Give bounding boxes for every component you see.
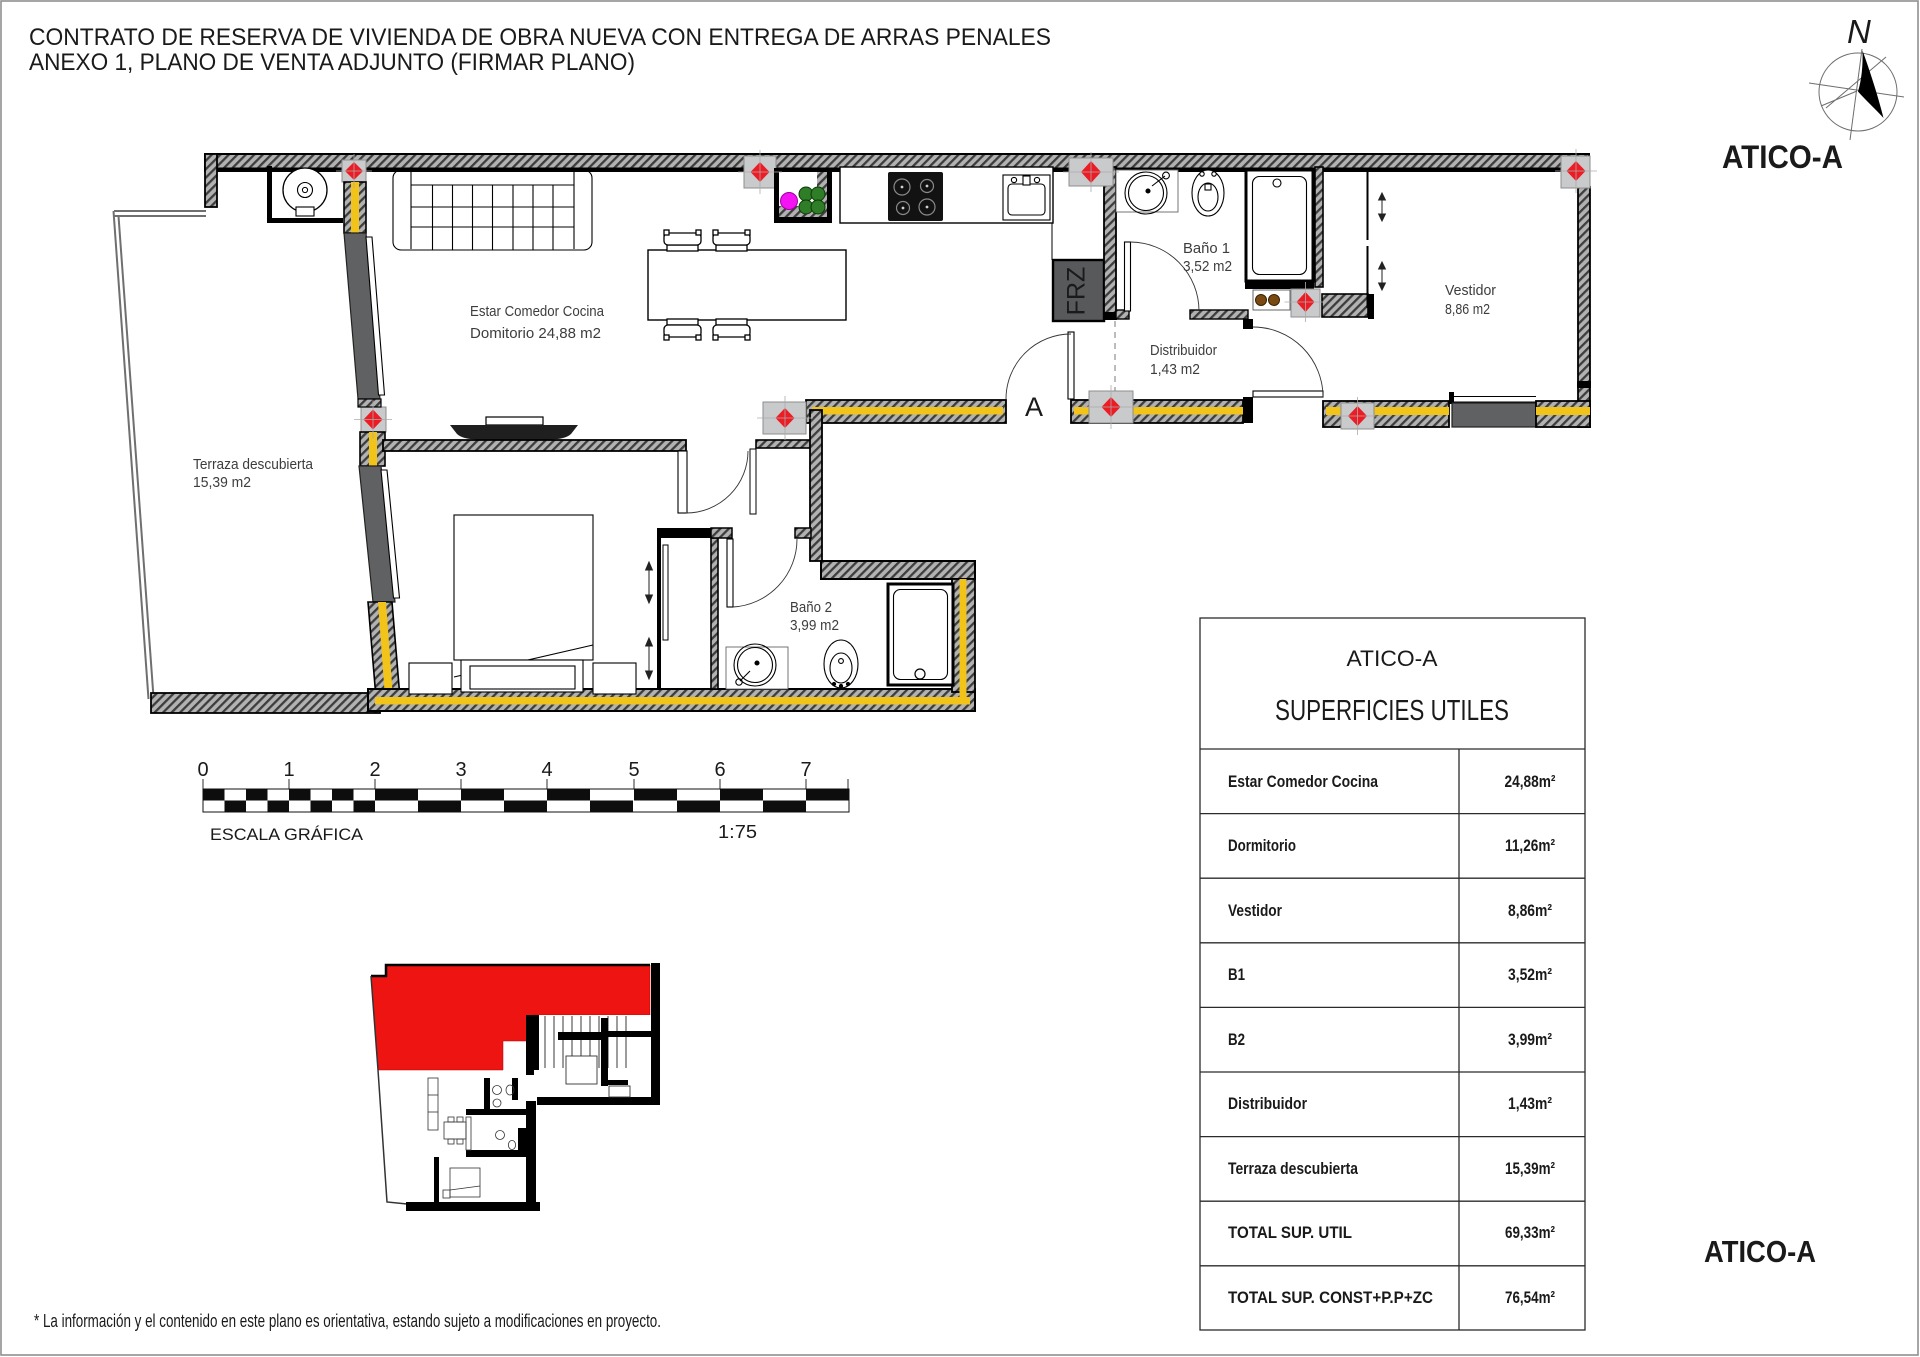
svg-text:TOTAL SUP. CONST+P.P+ZC: TOTAL SUP. CONST+P.P+ZC: [1228, 1289, 1433, 1307]
svg-text:FRZ: FRZ: [1063, 267, 1091, 316]
svg-text:* La información y el contenid: * La información y el contenido en este …: [34, 1311, 661, 1331]
svg-text:Distribuidor: Distribuidor: [1228, 1095, 1307, 1113]
svg-text:1:75: 1:75: [718, 822, 757, 842]
svg-text:N: N: [1847, 13, 1871, 50]
svg-text:ESCALA GRÁFICA: ESCALA GRÁFICA: [210, 825, 364, 844]
svg-text:1: 1: [283, 759, 294, 781]
svg-text:Estar Comedor Cocina: Estar Comedor Cocina: [1228, 773, 1379, 791]
svg-text:Vestidor: Vestidor: [1445, 282, 1496, 299]
svg-text:A: A: [1025, 392, 1043, 422]
svg-text:ANEXO 1, PLANO DE VENTA ADJUNT: ANEXO 1, PLANO DE VENTA ADJUNTO (FIRMAR …: [29, 49, 635, 76]
svg-text:76,54m²: 76,54m²: [1505, 1289, 1555, 1307]
svg-text:8,86 m2: 8,86 m2: [1445, 301, 1490, 318]
svg-text:ATICO-A: ATICO-A: [1704, 1234, 1816, 1269]
svg-text:Vestidor: Vestidor: [1228, 902, 1282, 920]
svg-text:1,43m²: 1,43m²: [1508, 1095, 1552, 1113]
svg-text:Estar Comedor Cocina: Estar Comedor Cocina: [470, 303, 605, 320]
svg-text:3,99 m2: 3,99 m2: [790, 617, 839, 634]
svg-text:TOTAL SUP. UTIL: TOTAL SUP. UTIL: [1228, 1224, 1352, 1242]
svg-text:ATICO-A: ATICO-A: [1722, 139, 1843, 175]
svg-text:Terraza descubierta: Terraza descubierta: [1228, 1160, 1359, 1178]
svg-text:Domitorio 24,88 m2: Domitorio 24,88 m2: [470, 325, 601, 342]
svg-text:3,52 m2: 3,52 m2: [1183, 258, 1232, 275]
svg-text:6: 6: [714, 759, 725, 781]
svg-text:Baño 2: Baño 2: [790, 599, 832, 616]
svg-text:Distribuidor: Distribuidor: [1150, 342, 1217, 359]
svg-text:B1: B1: [1228, 966, 1245, 984]
svg-text:3: 3: [455, 759, 466, 781]
svg-text:7: 7: [800, 759, 811, 781]
svg-text:1,43 m2: 1,43 m2: [1150, 361, 1200, 378]
svg-text:Baño 1: Baño 1: [1183, 240, 1230, 257]
svg-text:SUPERFICIES UTILES: SUPERFICIES UTILES: [1275, 695, 1509, 727]
svg-text:Terraza descubierta: Terraza descubierta: [193, 456, 314, 473]
svg-text:5: 5: [628, 759, 639, 781]
svg-text:2: 2: [369, 759, 380, 781]
svg-text:24,88m²: 24,88m²: [1505, 773, 1556, 791]
svg-text:B2: B2: [1228, 1031, 1245, 1049]
svg-text:Dormitorio: Dormitorio: [1228, 837, 1296, 855]
svg-text:11,26m²: 11,26m²: [1505, 837, 1555, 855]
svg-text:CONTRATO DE RESERVA DE VIVIEND: CONTRATO DE RESERVA DE VIVIENDA DE OBRA …: [29, 24, 1051, 51]
svg-text:ATICO-A: ATICO-A: [1347, 646, 1438, 671]
svg-text:15,39m²: 15,39m²: [1505, 1160, 1555, 1178]
svg-text:3,99m²: 3,99m²: [1508, 1031, 1552, 1049]
svg-text:8,86m²: 8,86m²: [1508, 902, 1552, 920]
svg-text:15,39 m2: 15,39 m2: [193, 474, 251, 491]
svg-text:3,52m²: 3,52m²: [1508, 966, 1552, 984]
svg-text:4: 4: [541, 759, 552, 781]
svg-text:69,33m²: 69,33m²: [1505, 1224, 1555, 1242]
svg-text:0: 0: [197, 759, 208, 781]
